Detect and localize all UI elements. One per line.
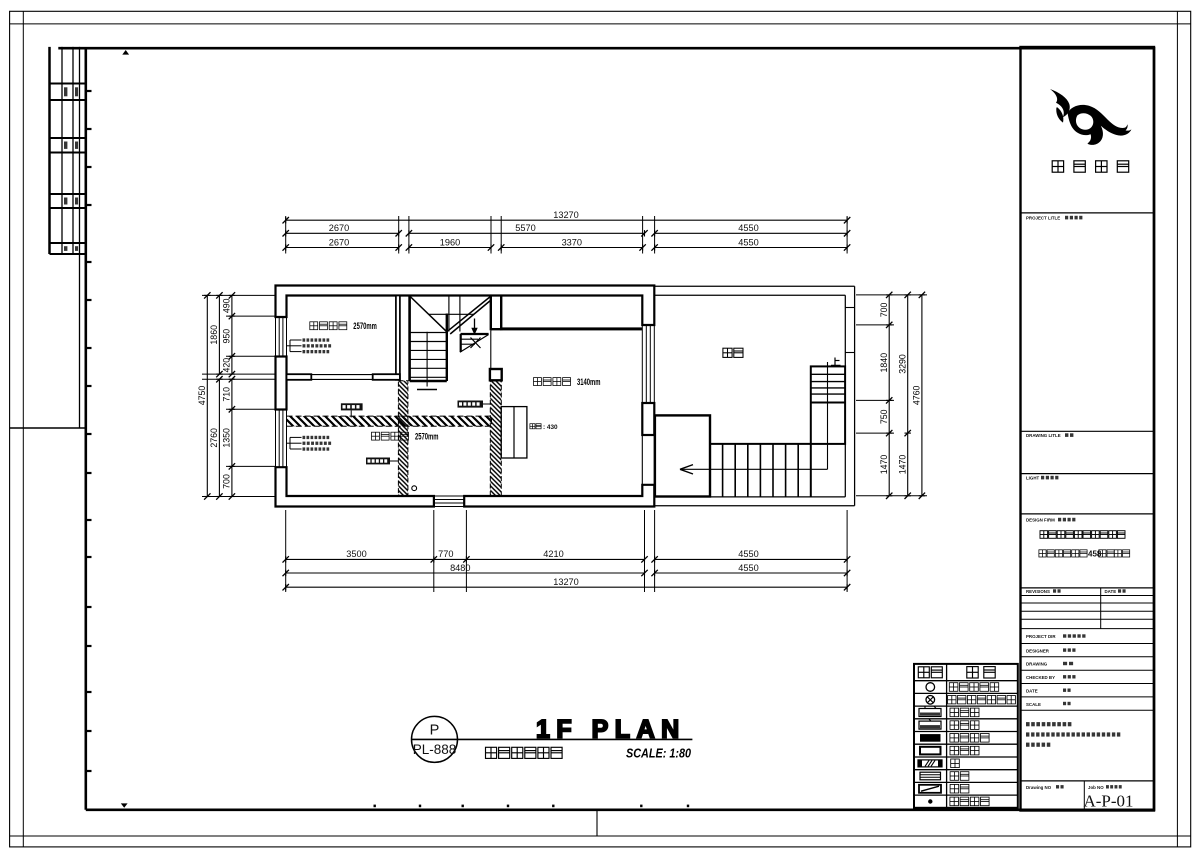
svg-text:710: 710	[222, 387, 232, 402]
svg-text:13270: 13270	[553, 577, 579, 587]
svg-text:LIGHT: LIGHT	[1026, 476, 1039, 481]
svg-text:DATE: DATE	[1105, 589, 1117, 594]
svg-text:REVISIONS: REVISIONS	[1026, 589, 1050, 594]
svg-text:4750: 4750	[197, 386, 207, 406]
svg-text:2760: 2760	[209, 428, 219, 448]
svg-text:3500: 3500	[346, 549, 366, 559]
svg-text:3290: 3290	[898, 354, 908, 374]
svg-text:Job NO: Job NO	[1088, 785, 1104, 790]
svg-text:1470: 1470	[879, 455, 889, 475]
svg-text:PROJECT LITLE: PROJECT LITLE	[1026, 216, 1060, 221]
svg-text:420: 420	[222, 358, 232, 373]
svg-text:2570mm: 2570mm	[353, 321, 377, 331]
svg-text:8480: 8480	[450, 563, 470, 573]
svg-text:1840: 1840	[879, 353, 889, 373]
svg-text:750: 750	[879, 409, 889, 424]
svg-text:DESIGNER: DESIGNER	[1026, 648, 1050, 653]
svg-text:2670: 2670	[329, 237, 349, 247]
svg-text:2570mm: 2570mm	[415, 432, 439, 442]
svg-text:13270: 13270	[553, 210, 579, 220]
svg-text:770: 770	[438, 549, 453, 559]
svg-text:4550: 4550	[738, 549, 758, 559]
svg-text:1860: 1860	[209, 325, 219, 345]
svg-text:: 430: : 430	[543, 424, 558, 431]
svg-text:Drawing NO: Drawing NO	[1026, 785, 1052, 790]
svg-text:A-P-01: A-P-01	[1083, 792, 1133, 811]
svg-text:700: 700	[879, 302, 889, 317]
svg-text:DRAWING: DRAWING	[1026, 662, 1048, 667]
svg-text:700: 700	[222, 474, 232, 489]
svg-text:4210: 4210	[543, 549, 563, 559]
svg-text:DESIGN FIRM: DESIGN FIRM	[1026, 518, 1055, 523]
svg-text:DATE: DATE	[1026, 688, 1038, 693]
svg-text:P: P	[430, 723, 440, 739]
svg-text:1F PLAN: 1F PLAN	[536, 716, 686, 744]
svg-text:3140mm: 3140mm	[577, 377, 601, 387]
svg-text:4760: 4760	[912, 386, 922, 406]
svg-text:1960: 1960	[440, 237, 460, 247]
svg-text:PROJECT DIR: PROJECT DIR	[1026, 634, 1056, 639]
svg-text:1350: 1350	[222, 428, 232, 448]
svg-text:3370: 3370	[562, 237, 582, 247]
svg-text:2670: 2670	[329, 223, 349, 233]
svg-text:SCALE: SCALE	[1026, 702, 1041, 707]
svg-text:5570: 5570	[515, 223, 535, 233]
svg-text:PL-888: PL-888	[413, 742, 457, 757]
svg-text:950: 950	[222, 329, 232, 344]
svg-text:DRAWING LITLE: DRAWING LITLE	[1026, 433, 1061, 438]
svg-text:1470: 1470	[898, 455, 908, 475]
svg-text:CHECKED BY: CHECKED BY	[1026, 675, 1055, 680]
svg-text:SCALE: 1:80: SCALE: 1:80	[626, 746, 692, 761]
svg-text:4550: 4550	[738, 223, 758, 233]
svg-text:490: 490	[222, 298, 232, 313]
svg-text:4550: 4550	[738, 563, 758, 573]
svg-text:4550: 4550	[738, 237, 758, 247]
